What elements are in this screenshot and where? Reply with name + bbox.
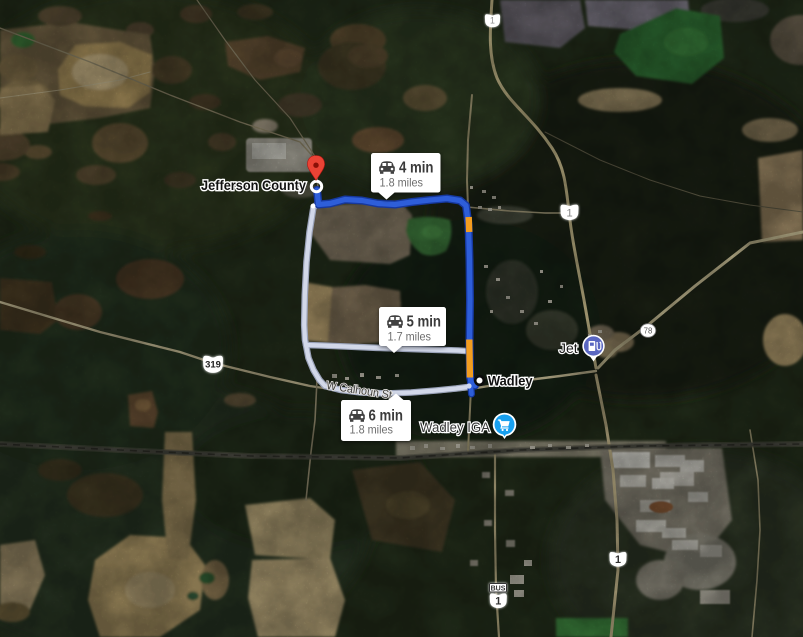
svg-text:1.8 miles: 1.8 miles [350,423,394,437]
svg-text:Wadley: Wadley [488,373,533,389]
svg-text:1.8 miles: 1.8 miles [380,176,424,190]
svg-text:78: 78 [644,326,653,335]
svg-text:1: 1 [490,16,495,26]
svg-text:BUS: BUS [491,586,506,593]
svg-text:1: 1 [615,554,621,566]
svg-text:319: 319 [205,360,221,371]
svg-text:5 min: 5 min [407,314,442,331]
svg-text:Jet: Jet [559,340,578,356]
svg-text:1: 1 [566,207,572,219]
svg-text:1: 1 [495,596,501,608]
svg-text:Jefferson County: Jefferson County [201,177,306,193]
svg-text:Wadley IGA: Wadley IGA [420,419,491,435]
svg-text:4 min: 4 min [399,160,434,177]
svg-text:1.7 miles: 1.7 miles [388,330,432,344]
